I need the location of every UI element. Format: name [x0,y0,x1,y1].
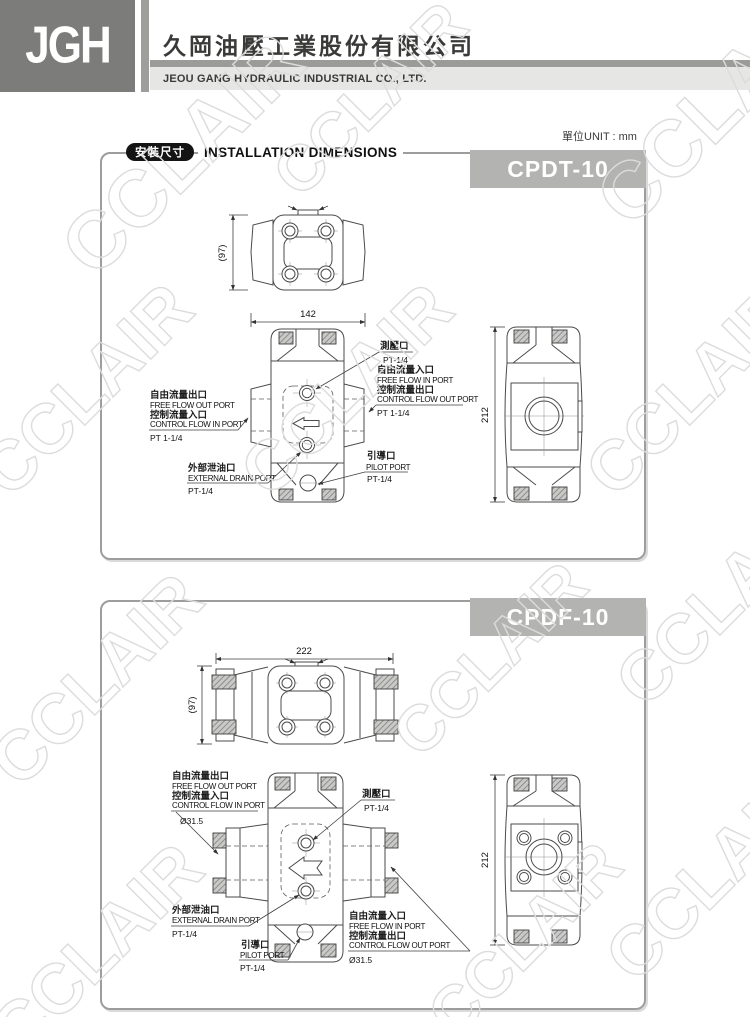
svg-text:EXTERNAL DRAIN PORT: EXTERNAL DRAIN PORT [172,916,260,925]
cpdt-drawing: (97) 142 測壓口 PT-1/4 自由流量 [100,152,646,560]
cpdt-label-outlet-port: 自由流量出口 FREE FLOW OUT PORT 控制流量入口 CONTROL… [149,389,248,443]
svg-text:212: 212 [480,407,491,423]
svg-text:FREE FLOW IN PORT: FREE FLOW IN PORT [349,922,426,931]
svg-text:PT 1-1/4: PT 1-1/4 [150,433,183,443]
svg-text:142: 142 [300,309,316,320]
cpdf-side-view [505,775,584,945]
company-name-en: JEOU GANG HYDRAULIC INDUSTRIAL CO., LTD. [150,73,427,85]
svg-text:PT-1/4: PT-1/4 [188,486,213,496]
cpdt-dim-depth: (97) [217,215,248,290]
model-label-cpdf10: CPDF-10 [470,598,646,636]
svg-text:PILOT PORT: PILOT PORT [366,463,411,472]
svg-text:PILOT PORT: PILOT PORT [240,951,285,960]
svg-text:(97): (97) [187,697,198,714]
cpdf-dim-height: 212 [480,775,505,945]
svg-text:CONTROL FLOW IN PORT: CONTROL FLOW IN PORT [172,801,265,810]
svg-text:CONTROL FLOW OUT PORT: CONTROL FLOW OUT PORT [377,395,479,404]
section-badge: 安裝尺寸 [126,143,194,161]
logo-text: JGH [25,17,109,76]
svg-text:自由流量入口: 自由流量入口 [349,910,406,922]
header-bar-light: JEOU GANG HYDRAULIC INDUSTRIAL CO., LTD. [150,67,750,90]
cpdt-label-inlet-port: 自由流量入口 FREE FLOW IN PORT 控制流量出口 CONTROL … [369,364,479,418]
svg-text:PT-1/4: PT-1/4 [383,355,408,365]
cpdt-side-view [505,327,584,502]
svg-text:EXTERNAL DRAIN PORT: EXTERNAL DRAIN PORT [188,474,276,483]
cpdf-dim-depth: (97) [187,666,212,744]
svg-text:222: 222 [296,646,312,657]
svg-text:自由流量出口: 自由流量出口 [150,389,207,401]
svg-text:CONTROL FLOW IN PORT: CONTROL FLOW IN PORT [150,420,243,429]
svg-text:自由流量入口: 自由流量入口 [377,364,434,376]
svg-text:FREE FLOW OUT PORT: FREE FLOW OUT PORT [172,782,257,791]
section-title: INSTALLATION DIMENSIONS [198,145,403,160]
company-logo: JGH [0,0,135,92]
svg-text:PT-1/4: PT-1/4 [240,963,265,973]
svg-text:引導口: 引導口 [367,450,396,462]
catalog-page: { "header": { "logo_text": "JGH", "compa… [0,0,750,1017]
cpdt-dim-height: 212 [480,327,505,502]
svg-text:(97): (97) [217,245,228,262]
svg-text:PT-1/4: PT-1/4 [172,929,197,939]
svg-text:PT-1/4: PT-1/4 [364,803,389,813]
cpdf-top-view [212,659,398,744]
company-name-zh: 久岡油壓工業股份有限公司 [163,27,475,61]
svg-text:PT 1-1/4: PT 1-1/4 [377,408,410,418]
svg-text:自由流量出口: 自由流量出口 [172,770,229,782]
svg-text:測壓口: 測壓口 [362,788,391,800]
unit-note: 單位UNIT : mm [562,128,637,144]
svg-text:PT-1/4: PT-1/4 [367,474,392,484]
model-label-cpdt10: CPDT-10 [470,150,646,188]
cpdf-dim-width: 222 [216,646,393,664]
svg-text:引導口: 引導口 [241,939,270,951]
svg-text:212: 212 [480,852,491,868]
svg-text:CONTROL FLOW OUT PORT: CONTROL FLOW OUT PORT [349,941,451,950]
header-divider-stripe [141,0,149,92]
cpdt-dim-width: 142 [251,309,365,327]
svg-text:外部泄油口: 外部泄油口 [187,462,236,474]
svg-text:Ø31.5: Ø31.5 [180,816,203,826]
cpdt-top-view [251,206,365,290]
cpdf-drawing: 222 (97) [100,600,646,1010]
svg-text:FREE FLOW OUT PORT: FREE FLOW OUT PORT [150,401,235,410]
svg-text:Ø31.5: Ø31.5 [349,955,372,965]
svg-text:FREE FLOW IN PORT: FREE FLOW IN PORT [377,376,454,385]
svg-text:外部泄油口: 外部泄油口 [171,904,220,916]
header-bar-dark [150,60,750,67]
svg-text:測壓口: 測壓口 [380,340,409,352]
